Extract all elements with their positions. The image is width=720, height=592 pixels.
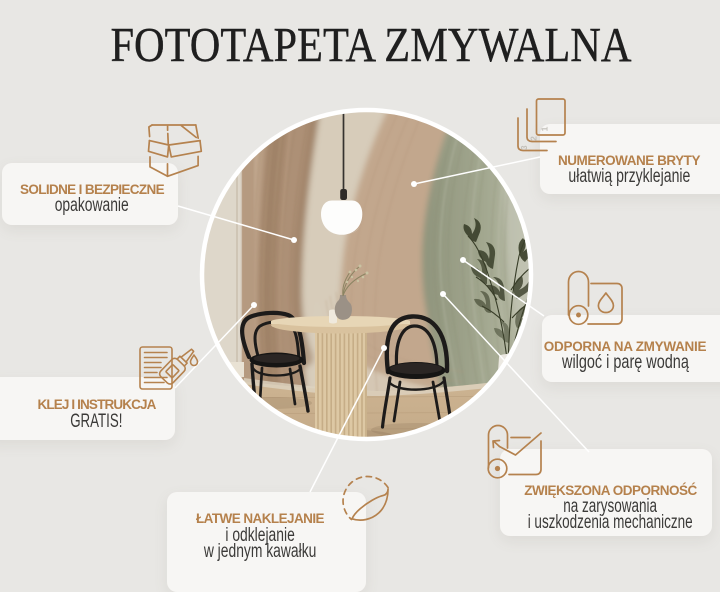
svg-text:3: 3 <box>519 145 529 150</box>
svg-text:2: 2 <box>529 136 539 141</box>
svg-text:1: 1 <box>540 126 550 131</box>
